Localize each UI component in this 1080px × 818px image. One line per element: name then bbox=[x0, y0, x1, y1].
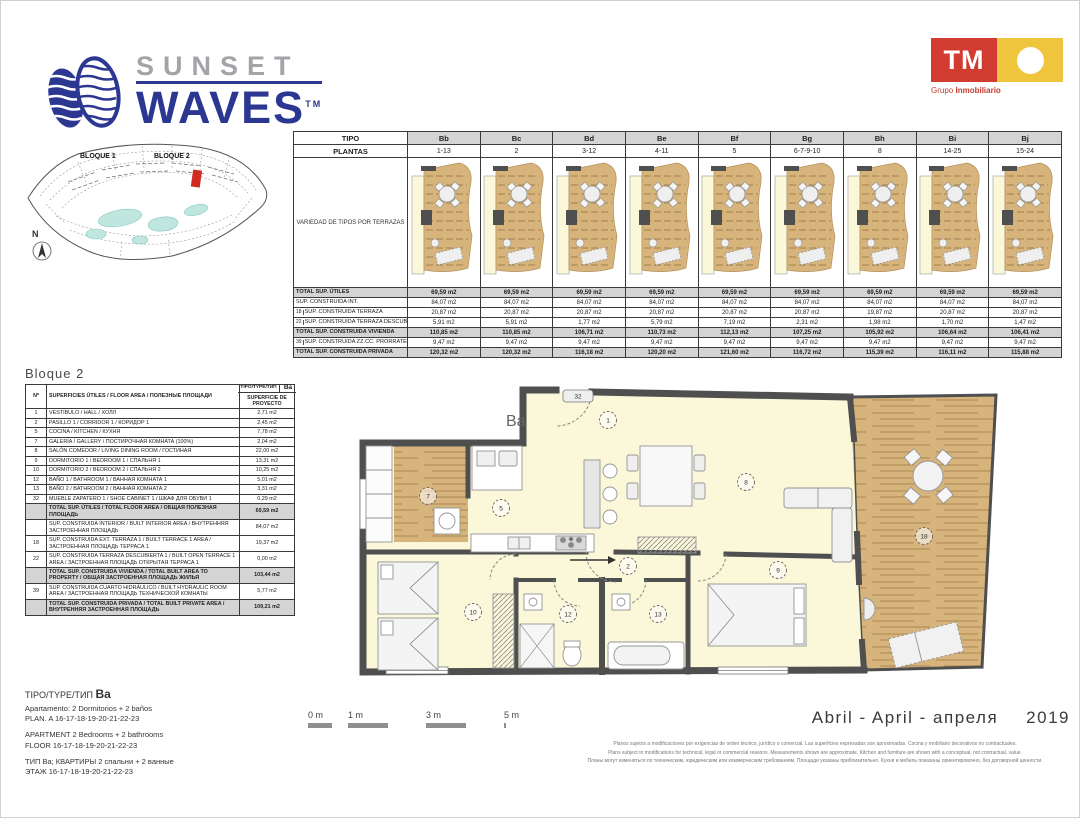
svg-text:1: 1 bbox=[606, 417, 610, 424]
room-label: COCINA / KITCHEN / КУХНЯ bbox=[47, 428, 240, 437]
value-cell: 9,47 m2 bbox=[989, 338, 1062, 348]
plantas-Bg: 6-7-9-10 bbox=[771, 145, 844, 158]
value-cell: 1,77 m2 bbox=[553, 318, 626, 328]
value-cell: 84,07 m2 bbox=[625, 298, 698, 308]
type-info-block: TIPO/TYPE/ТИП Ba Apartamento: 2 Dormitor… bbox=[25, 686, 305, 777]
row-label-5: 39SUP. CONSTRUIDA ZZ.CC. PRORRATEO bbox=[294, 338, 408, 348]
unit-row: 9DORMITORIO 1 / BEDROOM 1 / СПАЛЬНЯ 113,… bbox=[26, 456, 295, 465]
room-number-13: 13 bbox=[650, 606, 667, 623]
room-number-12: 12 bbox=[560, 606, 577, 623]
types-data-row: TOTAL SUP. CONSTRUIDA PRIVADA120,32 m212… bbox=[294, 348, 1062, 358]
value-cell: 5,91 m2 bbox=[480, 318, 553, 328]
value-cell: 116,72 m2 bbox=[771, 348, 844, 358]
value-cell: 9,47 m2 bbox=[916, 338, 989, 348]
value-cell: 20,87 m2 bbox=[408, 308, 481, 318]
room-num: 32 bbox=[26, 494, 47, 503]
plantas-Bf: 5 bbox=[698, 145, 771, 158]
terrace-thumbnail bbox=[845, 158, 915, 282]
value-cell: 116,18 m2 bbox=[553, 348, 626, 358]
svg-text:12: 12 bbox=[564, 611, 572, 618]
value-cell: 2,31 m2 bbox=[771, 318, 844, 328]
plantas-Be: 4-11 bbox=[625, 145, 698, 158]
room-value: 0,29 m2 bbox=[240, 494, 295, 503]
type-Bh: Bh bbox=[843, 132, 916, 145]
room-num: 1 bbox=[26, 409, 47, 418]
type-Bb: Bb bbox=[408, 132, 481, 145]
value-cell: 69,59 m2 bbox=[480, 288, 553, 298]
room-value: 0,00 m2 bbox=[240, 552, 295, 568]
value-cell: 9,47 m2 bbox=[698, 338, 771, 348]
scale-5m: 5 m bbox=[504, 710, 519, 720]
room-num: 5 bbox=[26, 428, 47, 437]
room-num: 8 bbox=[26, 447, 47, 456]
disclaimer-es: Planos sujetos a modificaciones por exig… bbox=[555, 740, 1075, 749]
types-data-row: TOTAL SUP. ÚTILES69,59 m269,59 m269,59 m… bbox=[294, 288, 1062, 298]
value-cell: 69,59 m2 bbox=[843, 288, 916, 298]
scale-3m: 3 m bbox=[426, 710, 466, 720]
room-num bbox=[26, 520, 47, 536]
disclaimer: Planos sujetos a modificaciones por exig… bbox=[555, 740, 1075, 766]
waves-icon bbox=[38, 46, 130, 138]
plantas-Bb: 1-13 bbox=[408, 145, 481, 158]
date-line: Abril - April - апреля 2019 bbox=[790, 708, 1070, 728]
col-surfaces: SUPERFICIES ÚTILES / FLOOR AREA / ПОЛЕЗН… bbox=[47, 385, 240, 409]
unit-row: 32MUEBLE ZAPATERO 1 / SHOE CABINET 1 / Ш… bbox=[26, 494, 295, 503]
types-table: TIPOBbBcBdBeBfBgBhBiBjPLANTAS1-1323-124-… bbox=[293, 131, 1062, 358]
svg-text:9: 9 bbox=[776, 567, 780, 574]
value-cell: 20,87 m2 bbox=[916, 308, 989, 318]
trademark-symbol: TM bbox=[305, 99, 322, 109]
room-num: 13 bbox=[26, 485, 47, 494]
value-cell: 112,13 m2 bbox=[698, 328, 771, 338]
value-cell: 5,79 m2 bbox=[625, 318, 698, 328]
unit-row: 5COCINA / KITCHEN / КУХНЯ7,78 m2 bbox=[26, 428, 295, 437]
value-cell: 120,32 m2 bbox=[480, 348, 553, 358]
type-info-ru1: ТИП Ba; КВАРТИРЫ 2 спальни + 2 ванные bbox=[25, 757, 305, 767]
value-cell: 84,07 m2 bbox=[916, 298, 989, 308]
unit-summary-row: 22SUP. CONSTRUIDA TERRAZA DESCUBIERTA 1 … bbox=[26, 552, 295, 568]
tm-circle-icon bbox=[1017, 47, 1044, 74]
types-data-row: 18SUP. CONSTRUIDA TERRAZA20,87 m220,87 m… bbox=[294, 308, 1062, 318]
type-info-ru2: ЭТАЖ 16-17-18-19-20-21-22-23 bbox=[25, 767, 305, 777]
type-Bj: Bj bbox=[989, 132, 1062, 145]
room-num: 9 bbox=[26, 456, 47, 465]
plantas-Bi: 14-25 bbox=[916, 145, 989, 158]
svg-text:18: 18 bbox=[920, 533, 928, 540]
value-cell: 20,87 m2 bbox=[553, 308, 626, 318]
types-data-row: SUP. CONSTRUIDA INT.84,07 m284,07 m284,0… bbox=[294, 298, 1062, 308]
unit-summary-row: SUP. CONSTRUIDA INTERIOR / BUILT INTERIO… bbox=[26, 520, 295, 536]
row-label-1: SUP. CONSTRUIDA INT. bbox=[294, 298, 408, 308]
room-value: 3,31 m2 bbox=[240, 485, 295, 494]
room-label: SUP. CONSTRUIDA TERRAZA DESCUBIERTA 1 / … bbox=[47, 552, 240, 568]
room-label: TOTAL SUP. ÚTILES / TOTAL FLOOR AREA / О… bbox=[47, 504, 240, 520]
room-number-2: 2 bbox=[620, 558, 637, 575]
unit-table-header: Nº SUPERFICIES ÚTILES / FLOOR AREA / ПОЛ… bbox=[26, 385, 295, 409]
bloque1-label: BLOQUE 1 bbox=[80, 153, 116, 160]
room-label: TOTAL SUP. CONSTRUIDA VIVIENDA / TOTAL B… bbox=[47, 567, 240, 583]
svg-text:8: 8 bbox=[744, 479, 748, 486]
north-compass: N bbox=[32, 229, 51, 260]
row-label-2: 18SUP. CONSTRUIDA TERRAZA bbox=[294, 308, 408, 318]
disclaimer-ru: Планы могут изменяться по техническим, ю… bbox=[555, 757, 1075, 766]
unit-row: 7GALERÍA / GALLERY / ПОСТИРОЧНАЯ КОМНАТА… bbox=[26, 437, 295, 446]
room-value: 2,04 m2 bbox=[240, 437, 295, 446]
tm-yellow-square bbox=[997, 38, 1063, 82]
scale-bar-3 bbox=[426, 723, 466, 728]
terrace-thumbnail bbox=[990, 158, 1060, 282]
type-Bd: Bd bbox=[553, 132, 626, 145]
plantas-row: PLANTAS1-1323-124-1156-7-9-10814-2515-24 bbox=[294, 145, 1062, 158]
room-value: 5,77 m2 bbox=[240, 583, 295, 599]
value-cell: 19,87 m2 bbox=[843, 308, 916, 318]
superficie-proyecto-label: SUPERFICIE DE PROYECTO bbox=[238, 393, 296, 409]
unit-summary-row: 18SUP. CONSTRUIDA EXT. TERRAZA 1 / BUILT… bbox=[26, 536, 295, 552]
plantas-Bj: 15-24 bbox=[989, 145, 1062, 158]
svg-text:2: 2 bbox=[626, 563, 630, 570]
value-cell: 84,07 m2 bbox=[771, 298, 844, 308]
type-info-es2: PLAN. A 16-17-18-19-20-21-22-23 bbox=[25, 714, 305, 724]
value-cell: 20,87 m2 bbox=[771, 308, 844, 318]
unit-type-label: Ba bbox=[506, 413, 526, 430]
value-cell: 69,59 m2 bbox=[625, 288, 698, 298]
svg-text:N: N bbox=[32, 229, 39, 239]
unit-row: 13BAÑO 2 / BATHROOM 2 / ВАННАЯ КОМНАТА 2… bbox=[26, 485, 295, 494]
type-info-title: TIPO/TYPE/ТИП Ba bbox=[25, 686, 305, 702]
svg-text:7: 7 bbox=[426, 493, 430, 500]
value-cell: 106,41 m2 bbox=[989, 328, 1062, 338]
room-value: 5,01 m2 bbox=[240, 475, 295, 484]
room-num bbox=[26, 599, 47, 615]
month-trilingual: Abril - April - апреля bbox=[812, 708, 998, 728]
room-num bbox=[26, 567, 47, 583]
site-outline bbox=[28, 144, 267, 259]
thumb-Bb bbox=[408, 158, 481, 288]
thumb-Be bbox=[625, 158, 698, 288]
tm-grupo-logo: TM Grupo Inmobiliario bbox=[931, 38, 1063, 95]
value-cell: 9,47 m2 bbox=[408, 338, 481, 348]
thumb-Bf bbox=[698, 158, 771, 288]
value-cell: 69,59 m2 bbox=[553, 288, 626, 298]
room-number-5: 5 bbox=[493, 500, 510, 517]
tm-red-square: TM bbox=[931, 38, 997, 82]
value-cell: 121,60 m2 bbox=[698, 348, 771, 358]
room-label: SUP. CONSTRUIDA INTERIOR / BUILT INTERIO… bbox=[47, 520, 240, 536]
room-value: 19,37 m2 bbox=[240, 536, 295, 552]
terrace-thumbnail bbox=[699, 158, 769, 282]
room-value: 2,45 m2 bbox=[240, 418, 295, 427]
room-number-32: 32 bbox=[563, 390, 593, 402]
thumb-Bd bbox=[553, 158, 626, 288]
value-cell: 69,59 m2 bbox=[408, 288, 481, 298]
value-cell: 120,20 m2 bbox=[625, 348, 698, 358]
value-cell: 120,32 m2 bbox=[408, 348, 481, 358]
type-Be: Be bbox=[625, 132, 698, 145]
value-cell: 110,85 m2 bbox=[408, 328, 481, 338]
type-Bf: Bf bbox=[698, 132, 771, 145]
unit-summary-row: TOTAL SUP. ÚTILES / TOTAL FLOOR AREA / О… bbox=[26, 504, 295, 520]
room-label: SUP. CONSTRUIDA CUARTO HIDRÁULICO / BUIL… bbox=[47, 583, 240, 599]
logo-sunset: SUNSET bbox=[136, 53, 322, 84]
types-data-row: TOTAL SUP. CONSTRUIDA VIVIENDA110,85 m21… bbox=[294, 328, 1062, 338]
unit-summary-row: TOTAL SUP. CONSTRUIDA VIVIENDA / TOTAL B… bbox=[26, 567, 295, 583]
type-code: Ba bbox=[280, 384, 296, 392]
room-num: 2 bbox=[26, 418, 47, 427]
site-plan: BLOQUE 1 BLOQUE 2 N bbox=[20, 138, 278, 270]
value-cell: 69,59 m2 bbox=[916, 288, 989, 298]
room-num bbox=[26, 504, 47, 520]
value-cell: 84,07 m2 bbox=[698, 298, 771, 308]
unit-row: 2PASILLO 1 / CORRIDOR 1 / КОРИДОР 12,45 … bbox=[26, 418, 295, 427]
thumb-Bc bbox=[480, 158, 553, 288]
room-num: 39 bbox=[26, 583, 47, 599]
plantas-Bc: 2 bbox=[480, 145, 553, 158]
unit-row: 12BAÑO 1 / BATHROOM 1 / ВАННАЯ КОМНАТА 1… bbox=[26, 475, 295, 484]
room-value: 84,07 m2 bbox=[240, 520, 295, 536]
bloque2-label: BLOQUE 2 bbox=[154, 153, 190, 160]
room-num: 22 bbox=[26, 552, 47, 568]
room-num: 18 bbox=[26, 536, 47, 552]
room-value: 7,78 m2 bbox=[240, 428, 295, 437]
value-cell: 105,92 m2 bbox=[843, 328, 916, 338]
floorplan-ba: Ba 1257891012131832 bbox=[358, 384, 1018, 689]
value-cell: 84,07 m2 bbox=[843, 298, 916, 308]
type-Bi: Bi bbox=[916, 132, 989, 145]
svg-text:5: 5 bbox=[499, 505, 503, 512]
room-number-9: 9 bbox=[770, 562, 787, 579]
scale-bar-0 bbox=[308, 723, 332, 728]
tipo-type-label: TIPO/TYPE/ТИП bbox=[238, 384, 280, 392]
thumb-Bj bbox=[989, 158, 1062, 288]
value-cell: 115,88 m2 bbox=[989, 348, 1062, 358]
value-cell: 106,64 m2 bbox=[916, 328, 989, 338]
unit-summary-row: TOTAL SUP. CONSTRUIDA PRIVADA / TOTAL BU… bbox=[26, 599, 295, 615]
value-cell: 20,87 m2 bbox=[698, 308, 771, 318]
unit-row: 8SALÓN COMEDOR / LIVING DINING ROOM / ГО… bbox=[26, 447, 295, 456]
value-cell: 20,87 m2 bbox=[625, 308, 698, 318]
value-cell: 9,47 m2 bbox=[553, 338, 626, 348]
types-header-row: TIPOBbBcBdBeBfBgBhBiBj bbox=[294, 132, 1062, 145]
room-label: PASILLO 1 / CORRIDOR 1 / КОРИДОР 1 bbox=[47, 418, 240, 427]
room-label: GALERÍA / GALLERY / ПОСТИРОЧНАЯ КОМНАТА … bbox=[47, 437, 240, 446]
terrace-thumbnail bbox=[409, 158, 479, 282]
plan-sheet: SUNSET WAVESTM TM Grupo Inmobiliario bbox=[0, 0, 1080, 818]
room-value: 2,71 m2 bbox=[240, 409, 295, 418]
room-num: 12 bbox=[26, 475, 47, 484]
types-data-row: 39SUP. CONSTRUIDA ZZ.CC. PRORRATEO9,47 m… bbox=[294, 338, 1062, 348]
value-cell: 5,91 m2 bbox=[408, 318, 481, 328]
value-cell: 9,47 m2 bbox=[771, 338, 844, 348]
terrace-thumbnail bbox=[917, 158, 987, 282]
type-info-en1: APARTMENT 2 Bedrooms + 2 bathrooms bbox=[25, 730, 305, 740]
thumb-Bh bbox=[843, 158, 916, 288]
value-cell: 7,19 m2 bbox=[698, 318, 771, 328]
value-cell: 69,59 m2 bbox=[698, 288, 771, 298]
logo-waves-word: WAVESTM bbox=[136, 84, 322, 131]
value-cell: 107,25 m2 bbox=[771, 328, 844, 338]
row-label-3: 22SUP. CONSTRUIDA TERRAZA DESCUBIERTA bbox=[294, 318, 408, 328]
col-num: Nº bbox=[26, 385, 47, 409]
value-cell: 69,59 m2 bbox=[771, 288, 844, 298]
unit-row: 1VESTÍBULO / HALL / ХОЛЛ2,71 m2 bbox=[26, 409, 295, 418]
room-number-1: 1 bbox=[600, 412, 617, 429]
room-num: 7 bbox=[26, 437, 47, 446]
logo-text: SUNSET WAVESTM bbox=[136, 53, 322, 131]
room-label: TOTAL SUP. CONSTRUIDA PRIVADA / TOTAL BU… bbox=[47, 599, 240, 615]
types-data-row: 22SUP. CONSTRUIDA TERRAZA DESCUBIERTA5,9… bbox=[294, 318, 1062, 328]
tm-tagline: Grupo Inmobiliario bbox=[931, 86, 1063, 95]
value-cell: 106,71 m2 bbox=[553, 328, 626, 338]
room-value: 22,00 m2 bbox=[240, 447, 295, 456]
room-label: DORMITORIO 2 / BEDROOM 2 / СПАЛЬНЯ 2 bbox=[47, 466, 240, 475]
room-num: 10 bbox=[26, 466, 47, 475]
row-label-6: TOTAL SUP. CONSTRUIDA PRIVADA bbox=[294, 348, 408, 358]
room-number-8: 8 bbox=[738, 474, 755, 491]
scale-1m: 1 m bbox=[348, 710, 388, 720]
svg-text:32: 32 bbox=[574, 393, 582, 400]
scale-bar: 0 m 1 m 3 m 5 m bbox=[308, 710, 568, 738]
terrace-thumbnail bbox=[772, 158, 842, 282]
col-type: TIPO/TYPE/ТИП Ba SUPERFICIE DE PROYECTO bbox=[240, 385, 295, 409]
bloque-title: Bloque 2 bbox=[25, 366, 84, 381]
room-label: SUP. CONSTRUIDA EXT. TERRAZA 1 / BUILT T… bbox=[47, 536, 240, 552]
room-number-10: 10 bbox=[465, 604, 482, 621]
tipo-label: TIPO bbox=[294, 132, 408, 145]
disclaimer-en: Plans subject to modifications for techn… bbox=[555, 749, 1075, 758]
value-cell: 9,47 m2 bbox=[480, 338, 553, 348]
terrace-thumbnail bbox=[627, 158, 697, 282]
room-value: 13,31 m2 bbox=[240, 456, 295, 465]
room-label: MUEBLE ZAPATERO 1 / SHOE CABINET 1 / ШКА… bbox=[47, 494, 240, 503]
value-cell: 20,87 m2 bbox=[989, 308, 1062, 318]
svg-text:10: 10 bbox=[469, 609, 477, 616]
room-label: SALÓN COMEDOR / LIVING DINING ROOM / ГОС… bbox=[47, 447, 240, 456]
plantas-label: PLANTAS bbox=[294, 145, 408, 158]
type-info-en2: FLOOR 16-17-18-19-20-21-22-23 bbox=[25, 741, 305, 751]
value-cell: 84,07 m2 bbox=[553, 298, 626, 308]
room-label: BAÑO 1 / BATHROOM 1 / ВАННАЯ КОМНАТА 1 bbox=[47, 475, 240, 484]
unit-surface-table: Nº SUPERFICIES ÚTILES / FLOOR AREA / ПОЛ… bbox=[25, 384, 295, 616]
room-label: BAÑO 2 / BATHROOM 2 / ВАННАЯ КОМНАТА 2 bbox=[47, 485, 240, 494]
room-number-7: 7 bbox=[420, 488, 437, 505]
thumb-Bg bbox=[771, 158, 844, 288]
value-cell: 1,70 m2 bbox=[916, 318, 989, 328]
room-label: VESTÍBULO / HALL / ХОЛЛ bbox=[47, 409, 240, 418]
sunset-waves-logo: SUNSET WAVESTM bbox=[38, 42, 318, 142]
terrace-thumbnail bbox=[554, 158, 624, 282]
type-Bc: Bc bbox=[480, 132, 553, 145]
thumbnails-row: VARIEDAD DE TIPOS POR TERRAZAS bbox=[294, 158, 1062, 288]
year: 2019 bbox=[1026, 708, 1070, 728]
value-cell: 110,73 m2 bbox=[625, 328, 698, 338]
scale-bar-1 bbox=[348, 723, 388, 728]
plantas-Bd: 3-12 bbox=[553, 145, 626, 158]
room-value: 109,21 m2 bbox=[240, 599, 295, 615]
row-label-4: TOTAL SUP. CONSTRUIDA VIVIENDA bbox=[294, 328, 408, 338]
value-cell: 20,87 m2 bbox=[480, 308, 553, 318]
row-label-0: TOTAL SUP. ÚTILES bbox=[294, 288, 408, 298]
value-cell: 84,07 m2 bbox=[480, 298, 553, 308]
room-value: 103,44 m2 bbox=[240, 567, 295, 583]
room-value: 10,25 m2 bbox=[240, 466, 295, 475]
value-cell: 116,11 m2 bbox=[916, 348, 989, 358]
room-number-18: 18 bbox=[916, 528, 933, 545]
unit-summary-row: 39SUP. CONSTRUIDA CUARTO HIDRÁULICO / BU… bbox=[26, 583, 295, 599]
value-cell: 84,07 m2 bbox=[989, 298, 1062, 308]
terrace-thumbnail bbox=[481, 158, 551, 282]
room-label: DORMITORIO 1 / BEDROOM 1 / СПАЛЬНЯ 1 bbox=[47, 456, 240, 465]
value-cell: 84,07 m2 bbox=[408, 298, 481, 308]
value-cell: 9,47 m2 bbox=[625, 338, 698, 348]
room-value: 69,59 m2 bbox=[240, 504, 295, 520]
scale-bar-5 bbox=[504, 723, 506, 728]
value-cell: 69,59 m2 bbox=[989, 288, 1062, 298]
type-info-es1: Apartamento: 2 Dormitorios + 2 baños bbox=[25, 704, 305, 714]
value-cell: 1,47 m2 bbox=[989, 318, 1062, 328]
value-cell: 1,98 m2 bbox=[843, 318, 916, 328]
value-cell: 9,47 m2 bbox=[843, 338, 916, 348]
type-Bg: Bg bbox=[771, 132, 844, 145]
variety-label: VARIEDAD DE TIPOS POR TERRAZAS bbox=[294, 158, 408, 288]
value-cell: 115,39 m2 bbox=[843, 348, 916, 358]
plantas-Bh: 8 bbox=[843, 145, 916, 158]
thumb-Bi bbox=[916, 158, 989, 288]
svg-text:13: 13 bbox=[654, 611, 662, 618]
unit-row: 10DORMITORIO 2 / BEDROOM 2 / СПАЛЬНЯ 210… bbox=[26, 466, 295, 475]
value-cell: 110,85 m2 bbox=[480, 328, 553, 338]
scale-0m: 0 m bbox=[308, 710, 332, 720]
